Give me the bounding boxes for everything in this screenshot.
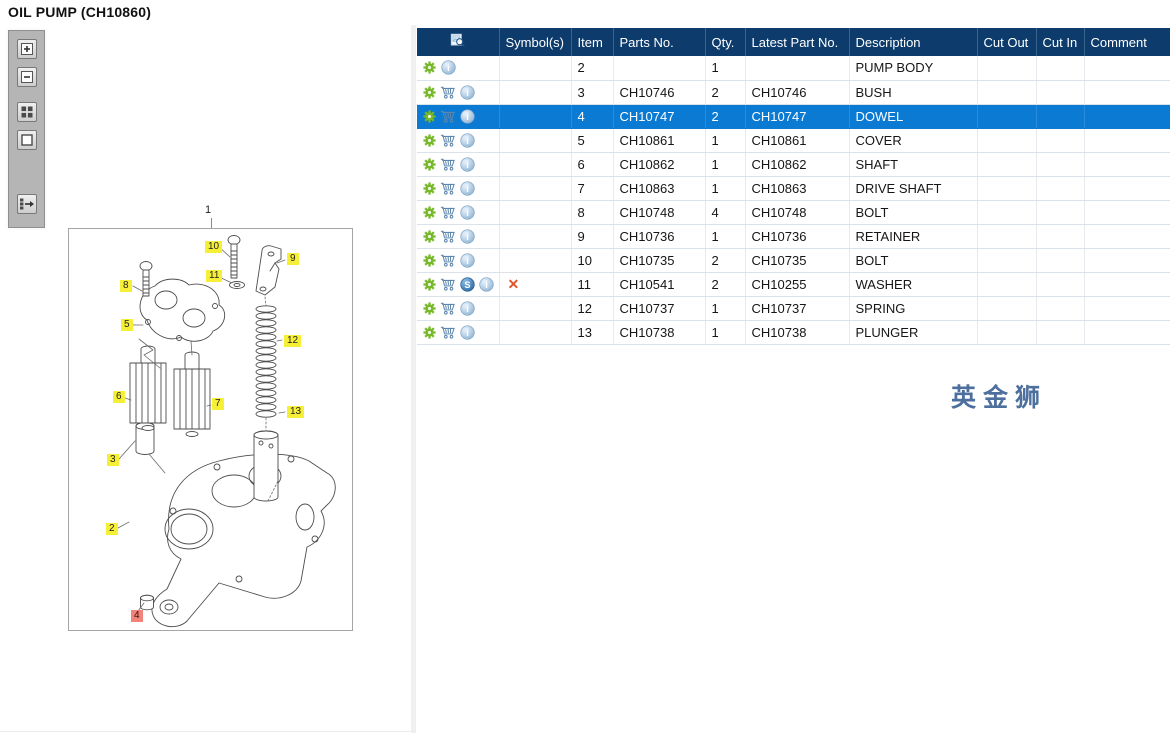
table-row-item-8[interactable]: i8CH107484CH10748BOLT [417, 200, 1170, 224]
table-row-item-13[interactable]: i13CH107381CH10738PLUNGER [417, 320, 1170, 344]
exploded-diagram-canvas[interactable] [68, 228, 353, 631]
cart-icon[interactable] [440, 228, 456, 244]
diagram-callout-13[interactable]: 13 [287, 406, 304, 418]
zoom-out-button[interactable] [17, 67, 37, 87]
cell-comment [1084, 80, 1170, 104]
cell-cut_in [1036, 248, 1084, 272]
table-row-item-9[interactable]: i9CH107361CH10736RETAINER [417, 224, 1170, 248]
cell-latest_part_no: CH10863 [745, 176, 849, 200]
cell-parts_no: CH10862 [613, 152, 705, 176]
substitute-icon[interactable]: S [459, 276, 475, 292]
info-icon[interactable]: i [459, 156, 475, 172]
cell-comment [1084, 224, 1170, 248]
diagram-toolbar [8, 30, 45, 228]
cell-symbols [499, 128, 571, 152]
parts-table: Symbol(s)ItemParts No.Qty.Latest Part No… [417, 28, 1170, 345]
cart-icon[interactable] [440, 108, 456, 124]
cell-description: BOLT [849, 200, 977, 224]
zoom-out-icon [19, 69, 35, 85]
cell-description: PLUNGER [849, 320, 977, 344]
cell-latest_part_no: CH10746 [745, 80, 849, 104]
cell-actions: i [417, 248, 499, 272]
cell-cut_in [1036, 128, 1084, 152]
cell-item: 13 [571, 320, 613, 344]
cell-parts_no: CH10541 [613, 272, 705, 296]
zoom-in-icon [19, 41, 35, 57]
diagram-callout-9[interactable]: 9 [287, 253, 299, 265]
cell-item: 7 [571, 176, 613, 200]
column-header-actions[interactable] [417, 28, 499, 56]
cart-icon[interactable] [440, 324, 456, 340]
parts-table-panel: Symbol(s)ItemParts No.Qty.Latest Part No… [417, 28, 1170, 345]
cell-symbols [499, 248, 571, 272]
diagram-callout-6[interactable]: 6 [113, 391, 125, 403]
cell-parts_no: CH10738 [613, 320, 705, 344]
cell-item: 11 [571, 272, 613, 296]
cell-cut_out [977, 128, 1036, 152]
cell-description: SHAFT [849, 152, 977, 176]
exploded-diagram-drawing [69, 229, 352, 630]
cell-actions: Si [417, 272, 499, 296]
cell-parts_no: CH10861 [613, 128, 705, 152]
cell-description: COVER [849, 128, 977, 152]
cell-cut_in [1036, 104, 1084, 128]
info-icon[interactable]: i [459, 84, 475, 100]
cell-item: 2 [571, 56, 613, 80]
diagram-callout-2[interactable]: 2 [106, 523, 118, 535]
cell-actions: i [417, 224, 499, 248]
gear-icon[interactable] [421, 204, 437, 220]
diagram-callout-10[interactable]: 10 [205, 241, 222, 253]
cell-comment [1084, 128, 1170, 152]
cell-qty: 2 [705, 80, 745, 104]
cell-qty: 1 [705, 152, 745, 176]
cell-symbols [499, 296, 571, 320]
cell-qty: 1 [705, 224, 745, 248]
cell-parts_no: CH10736 [613, 224, 705, 248]
column-header-item[interactable]: Item [571, 28, 613, 56]
cell-comment [1084, 152, 1170, 176]
cell-symbols [499, 176, 571, 200]
cell-cut_out [977, 80, 1036, 104]
table-row-item-4[interactable]: i4CH107472CH10747DOWEL [417, 104, 1170, 128]
gear-icon[interactable] [421, 156, 437, 172]
column-header-parts_no[interactable]: Parts No. [613, 28, 705, 56]
column-header-description[interactable]: Description [849, 28, 977, 56]
cell-latest_part_no: CH10255 [745, 272, 849, 296]
cell-actions: i [417, 296, 499, 320]
svg-text:i: i [466, 184, 469, 195]
cell-item: 6 [571, 152, 613, 176]
cell-item: 8 [571, 200, 613, 224]
gear-icon[interactable] [421, 108, 437, 124]
cell-symbols [499, 104, 571, 128]
diagram-callout-11[interactable]: 11 [206, 270, 222, 282]
info-icon[interactable]: i [459, 324, 475, 340]
diagram-callout-4[interactable]: 4 [131, 610, 143, 622]
cell-parts_no: CH10863 [613, 176, 705, 200]
svg-text:i: i [466, 136, 469, 147]
cell-latest_part_no: CH10737 [745, 296, 849, 320]
diagram-callout-7[interactable]: 7 [212, 398, 224, 410]
cell-item: 10 [571, 248, 613, 272]
svg-text:i: i [466, 328, 469, 339]
svg-text:S: S [464, 280, 470, 290]
cell-item: 4 [571, 104, 613, 128]
cell-parts_no [613, 56, 705, 80]
cell-comment [1084, 200, 1170, 224]
table-row-item-11[interactable]: Si✕11CH105412CH10255WASHER [417, 272, 1170, 296]
cell-qty: 1 [705, 296, 745, 320]
cell-cut_out [977, 56, 1036, 80]
cell-comment [1084, 320, 1170, 344]
cell-actions: i [417, 128, 499, 152]
svg-text:i: i [466, 208, 469, 219]
column-header-cut_out[interactable]: Cut Out [977, 28, 1036, 56]
cart-icon[interactable] [440, 252, 456, 268]
cell-symbols [499, 152, 571, 176]
column-header-cut_in[interactable]: Cut In [1036, 28, 1084, 56]
diagram-callout-3[interactable]: 3 [107, 454, 119, 466]
cell-latest_part_no: CH10747 [745, 104, 849, 128]
cell-latest_part_no: CH10736 [745, 224, 849, 248]
table-row-item-3[interactable]: i3CH107462CH10746BUSH [417, 80, 1170, 104]
info-icon[interactable]: i [478, 276, 494, 292]
cell-actions: i [417, 176, 499, 200]
table-row-item-7[interactable]: i7CH108631CH10863DRIVE SHAFT [417, 176, 1170, 200]
page-title: OIL PUMP (CH10860) [8, 4, 151, 20]
gear-icon[interactable] [421, 60, 437, 76]
panel-splitter[interactable] [411, 25, 416, 733]
info-icon[interactable]: i [440, 60, 456, 76]
cell-latest_part_no [745, 56, 849, 80]
cell-cut_out [977, 224, 1036, 248]
cell-cut_out [977, 320, 1036, 344]
figure-number-label: 1 [205, 204, 211, 216]
zoom-in-button[interactable] [17, 39, 37, 59]
cell-cut_out [977, 104, 1036, 128]
cell-description: BOLT [849, 248, 977, 272]
cell-description: DRIVE SHAFT [849, 176, 977, 200]
diagram-callout-12[interactable]: 12 [284, 335, 301, 347]
cell-qty: 1 [705, 128, 745, 152]
column-header-latest_part_no[interactable]: Latest Part No. [745, 28, 849, 56]
cell-cut_in [1036, 176, 1084, 200]
cell-item: 5 [571, 128, 613, 152]
cell-cut_in [1036, 200, 1084, 224]
info-icon[interactable]: i [459, 204, 475, 220]
column-header-qty[interactable]: Qty. [705, 28, 745, 56]
table-row-item-12[interactable]: i12CH107371CH10737SPRING [417, 296, 1170, 320]
cell-item: 12 [571, 296, 613, 320]
cell-item: 9 [571, 224, 613, 248]
gear-icon[interactable] [421, 300, 437, 316]
cell-symbols [499, 224, 571, 248]
gear-icon[interactable] [421, 180, 437, 196]
cell-actions: i [417, 104, 499, 128]
cart-icon[interactable] [440, 204, 456, 220]
cell-cut_in [1036, 152, 1084, 176]
cell-cut_in [1036, 56, 1084, 80]
cell-latest_part_no: CH10738 [745, 320, 849, 344]
cell-latest_part_no: CH10861 [745, 128, 849, 152]
gear-icon[interactable] [421, 324, 437, 340]
cell-qty: 2 [705, 272, 745, 296]
cell-description: SPRING [849, 296, 977, 320]
svg-text:i: i [466, 232, 469, 243]
diagram-callout-5[interactable]: 5 [121, 319, 133, 331]
panel-bottom-border [0, 731, 411, 732]
cell-parts_no: CH10735 [613, 248, 705, 272]
cell-actions: i [417, 56, 499, 80]
cell-latest_part_no: CH10862 [745, 152, 849, 176]
watermark-text: 英金狮 [951, 378, 1047, 414]
svg-text:i: i [447, 63, 450, 74]
table-row-item-5[interactable]: i5CH108611CH10861COVER [417, 128, 1170, 152]
cart-icon[interactable] [440, 300, 456, 316]
cell-cut_out [977, 248, 1036, 272]
table-header-row: Symbol(s)ItemParts No.Qty.Latest Part No… [417, 28, 1170, 56]
svg-text:i: i [485, 280, 488, 291]
info-icon[interactable]: i [459, 228, 475, 244]
cell-qty: 1 [705, 320, 745, 344]
cart-icon[interactable] [440, 156, 456, 172]
parts-catalog-window: OIL PUMP (CH10860) 1 [0, 0, 1170, 733]
cell-cut_out [977, 176, 1036, 200]
cell-qty: 2 [705, 248, 745, 272]
cell-description: RETAINER [849, 224, 977, 248]
cell-symbols [499, 200, 571, 224]
cell-qty: 4 [705, 200, 745, 224]
superseded-x-icon: ✕ [508, 276, 520, 292]
cell-description: BUSH [849, 80, 977, 104]
cart-icon[interactable] [440, 84, 456, 100]
cell-description: PUMP BODY [849, 56, 977, 80]
gear-icon[interactable] [421, 276, 437, 292]
gear-icon[interactable] [421, 228, 437, 244]
svg-text:i: i [466, 160, 469, 171]
cell-qty: 1 [705, 176, 745, 200]
cell-symbols [499, 80, 571, 104]
svg-text:i: i [466, 256, 469, 267]
table-row-item-6[interactable]: i6CH108621CH10862SHAFT [417, 152, 1170, 176]
info-icon[interactable]: i [459, 300, 475, 316]
cell-cut_in [1036, 80, 1084, 104]
figure-leader-line [211, 218, 212, 228]
cell-qty: 2 [705, 104, 745, 128]
single-view-icon [19, 132, 35, 148]
cell-cut_in [1036, 320, 1084, 344]
cell-cut_in [1036, 224, 1084, 248]
column-header-symbols[interactable]: Symbol(s) [499, 28, 571, 56]
cart-icon[interactable] [440, 132, 456, 148]
info-icon[interactable]: i [459, 132, 475, 148]
cell-symbols: ✕ [499, 272, 571, 296]
cell-comment [1084, 56, 1170, 80]
cell-description: WASHER [849, 272, 977, 296]
cell-cut_in [1036, 272, 1084, 296]
cell-cut_out [977, 200, 1036, 224]
svg-text:i: i [466, 88, 469, 99]
gear-icon[interactable] [421, 252, 437, 268]
preview-icon [450, 32, 466, 48]
gear-icon[interactable] [421, 132, 437, 148]
cell-comment [1084, 248, 1170, 272]
cart-icon[interactable] [440, 276, 456, 292]
cell-cut_out [977, 152, 1036, 176]
cell-actions: i [417, 200, 499, 224]
cell-symbols [499, 56, 571, 80]
svg-text:i: i [466, 112, 469, 123]
cell-symbols [499, 320, 571, 344]
cell-latest_part_no: CH10748 [745, 200, 849, 224]
table-row-item-2[interactable]: i21PUMP BODY [417, 56, 1170, 80]
cell-parts_no: CH10747 [613, 104, 705, 128]
info-icon[interactable]: i [459, 108, 475, 124]
cell-comment [1084, 296, 1170, 320]
column-header-comment[interactable]: Comment [1084, 28, 1170, 56]
diagram-callout-8[interactable]: 8 [120, 280, 132, 292]
info-icon[interactable]: i [459, 180, 475, 196]
cell-actions: i [417, 320, 499, 344]
toggle-parts-list-button[interactable] [17, 194, 37, 214]
svg-text:i: i [466, 304, 469, 315]
gear-icon[interactable] [421, 84, 437, 100]
cell-comment [1084, 104, 1170, 128]
cell-actions: i [417, 80, 499, 104]
cell-cut_in [1036, 296, 1084, 320]
single-view-button[interactable] [17, 130, 37, 150]
cell-parts_no: CH10746 [613, 80, 705, 104]
cell-comment [1084, 176, 1170, 200]
cell-item: 3 [571, 80, 613, 104]
toggle-parts-list-icon [19, 196, 35, 212]
cell-comment [1084, 272, 1170, 296]
table-row-item-10[interactable]: i10CH107352CH10735BOLT [417, 248, 1170, 272]
cell-parts_no: CH10748 [613, 200, 705, 224]
tile-view-button[interactable] [17, 102, 37, 122]
cell-description: DOWEL [849, 104, 977, 128]
cell-cut_out [977, 296, 1036, 320]
cell-qty: 1 [705, 56, 745, 80]
cell-actions: i [417, 152, 499, 176]
cell-parts_no: CH10737 [613, 296, 705, 320]
cell-latest_part_no: CH10735 [745, 248, 849, 272]
tile-view-icon [19, 104, 35, 120]
cell-cut_out [977, 272, 1036, 296]
cart-icon[interactable] [440, 180, 456, 196]
info-icon[interactable]: i [459, 252, 475, 268]
